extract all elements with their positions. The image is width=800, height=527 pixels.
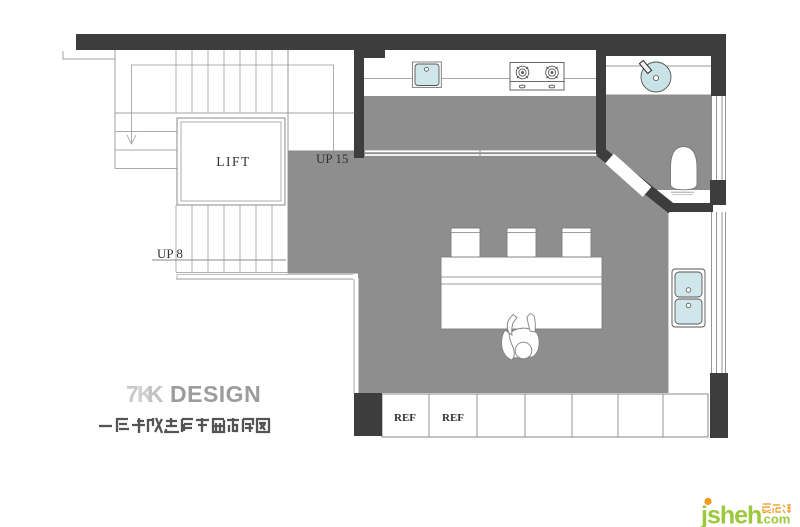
- svg-text:REF: REF: [394, 412, 416, 424]
- svg-text:K: K: [147, 381, 164, 407]
- svg-text:DESIGN: DESIGN: [170, 381, 261, 407]
- svg-text:LIFT: LIFT: [216, 154, 251, 169]
- svg-text:jsheh: jsheh: [700, 502, 761, 527]
- svg-text:REF: REF: [442, 412, 464, 424]
- svg-text:UP 8: UP 8: [157, 246, 183, 261]
- svg-text:.com: .com: [760, 512, 790, 527]
- svg-text:UP 15: UP 15: [316, 151, 348, 166]
